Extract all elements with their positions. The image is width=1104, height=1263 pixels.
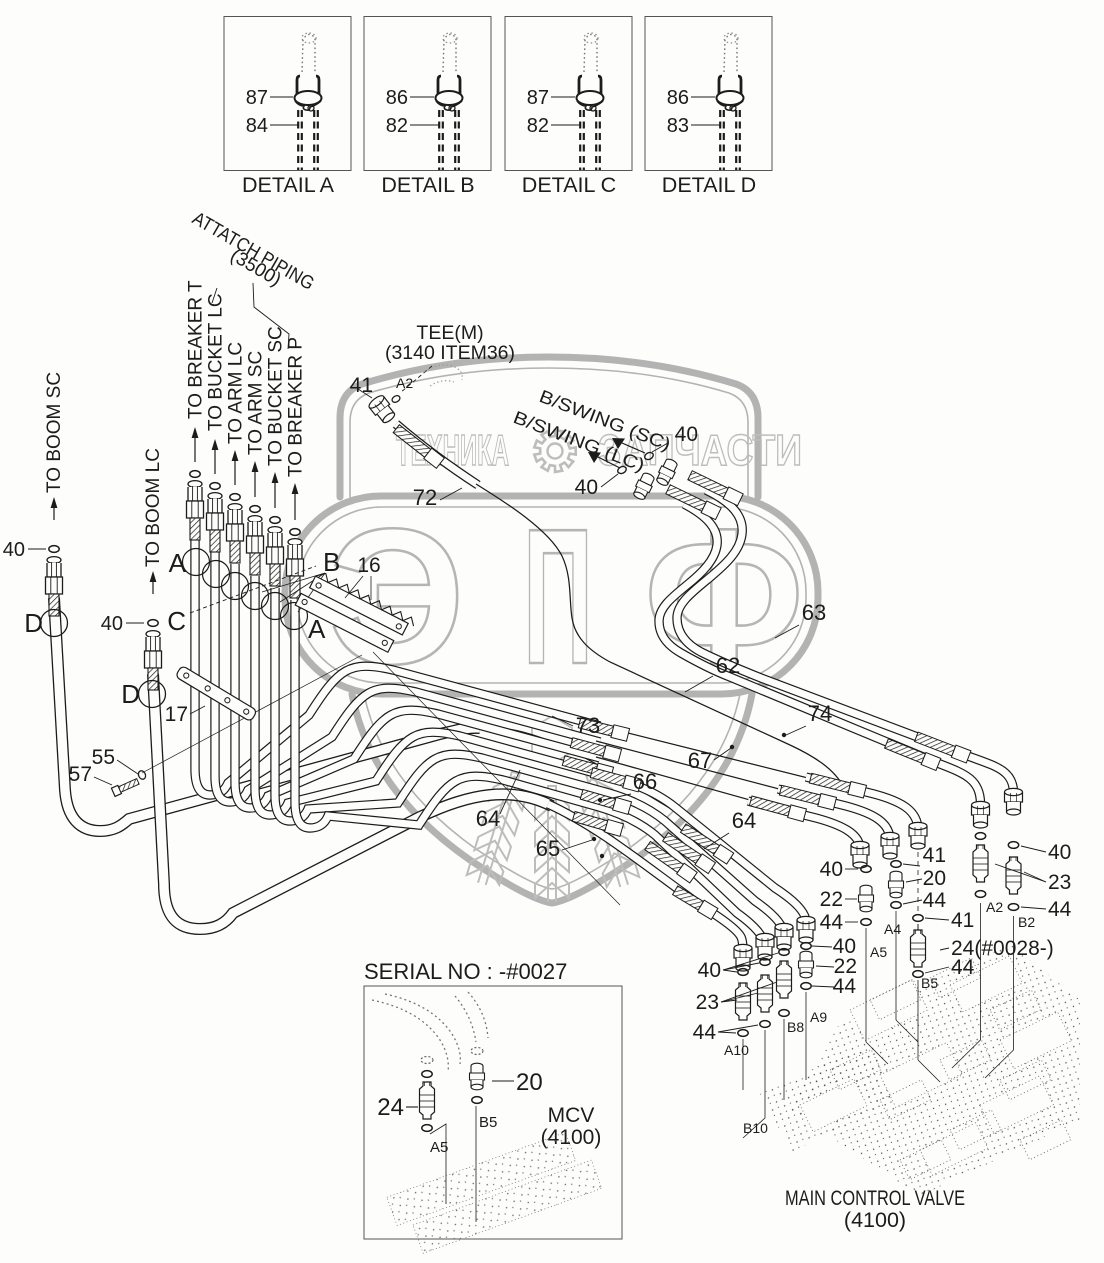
svg-text:40: 40 [3,539,25,561]
svg-text:86: 86 [667,87,689,109]
svg-text:44: 44 [693,1021,717,1044]
svg-text:DETAIL A: DETAIL A [242,173,335,197]
svg-text:23: 23 [1048,871,1071,894]
svg-text:62: 62 [716,653,740,678]
svg-text:82: 82 [527,115,549,137]
svg-text:17: 17 [165,703,188,726]
svg-text:D: D [121,679,140,709]
svg-text:63: 63 [802,600,826,625]
svg-text:C: C [167,606,186,636]
svg-text:B: B [323,547,340,577]
svg-text:(3140 ITEM36): (3140 ITEM36) [385,342,515,364]
svg-text:MCV: MCV [548,1104,595,1127]
svg-text:20: 20 [516,1069,543,1096]
svg-text:41: 41 [350,374,373,397]
svg-text:(4100): (4100) [844,1208,906,1232]
svg-text:DETAIL D: DETAIL D [662,173,756,197]
svg-text:DETAIL C: DETAIL C [522,173,616,197]
svg-text:B5: B5 [479,1114,497,1131]
svg-text:TO BOOM SC: TO BOOM SC [44,372,65,493]
svg-text:72: 72 [413,485,437,510]
svg-text:A: A [169,548,187,578]
svg-text:73: 73 [576,713,600,738]
svg-text:65: 65 [536,836,560,861]
svg-text:87: 87 [246,87,268,109]
svg-text:86: 86 [386,87,408,109]
svg-text:A2: A2 [986,899,1003,915]
svg-text:SERIAL NO : -#0027: SERIAL NO : -#0027 [364,959,567,984]
svg-text:TO BREAKER T: TO BREAKER T [186,280,207,419]
svg-text:A10: A10 [724,1042,749,1058]
svg-text:64: 64 [732,808,756,833]
svg-text:67: 67 [688,748,712,773]
svg-text:B10: B10 [743,1120,768,1136]
svg-text:23: 23 [696,991,719,1014]
svg-text:TO BREAKER P: TO BREAKER P [286,337,307,477]
svg-text:40: 40 [1048,841,1071,864]
svg-text:MAIN CONTROL VALVE: MAIN CONTROL VALVE [785,1187,965,1210]
svg-text:87: 87 [527,87,549,109]
svg-text:82: 82 [386,115,408,137]
svg-text:40: 40 [675,423,698,446]
svg-text:22: 22 [820,888,843,911]
svg-text:44: 44 [833,975,857,998]
svg-text:TO ARM SC: TO ARM SC [246,351,267,455]
svg-text:A5: A5 [870,944,887,960]
svg-text:44: 44 [1048,898,1072,921]
svg-text:TO BOOM LC: TO BOOM LC [143,448,164,567]
svg-text:TO BUCKET LC: TO BUCKET LC [206,293,227,431]
svg-text:D: D [24,608,43,638]
svg-text:24: 24 [377,1094,404,1121]
svg-text:83: 83 [667,115,689,137]
svg-text:40: 40 [101,613,123,635]
svg-text:40: 40 [698,959,721,982]
svg-text:55: 55 [92,746,115,769]
svg-text:44: 44 [951,956,975,979]
svg-text:40: 40 [820,858,843,881]
svg-text:B8: B8 [787,1019,804,1035]
svg-text:DETAIL B: DETAIL B [381,173,474,197]
svg-text:TEE(M): TEE(M) [416,322,483,344]
svg-text:A2: A2 [396,375,413,391]
svg-text:16: 16 [357,554,380,577]
svg-text:44: 44 [923,889,947,912]
svg-text:74: 74 [808,701,832,726]
svg-text:TO ARM LC: TO ARM LC [226,342,247,444]
svg-text:41: 41 [923,844,946,867]
svg-text:20: 20 [923,867,946,890]
svg-text:66: 66 [633,769,657,794]
svg-text:A9: A9 [810,1009,827,1025]
svg-text:B2: B2 [1018,914,1035,930]
svg-text:41: 41 [951,909,974,932]
svg-text:TO BUCKET SC: TO BUCKET SC [266,326,287,466]
svg-text:П: П [523,488,593,704]
svg-text:57: 57 [69,763,92,786]
svg-text:64: 64 [476,806,500,831]
svg-text:B5: B5 [921,975,938,991]
svg-text:84: 84 [246,115,268,137]
svg-text:44: 44 [820,911,844,934]
svg-text:A4: A4 [884,921,901,937]
svg-text:40: 40 [575,476,598,499]
